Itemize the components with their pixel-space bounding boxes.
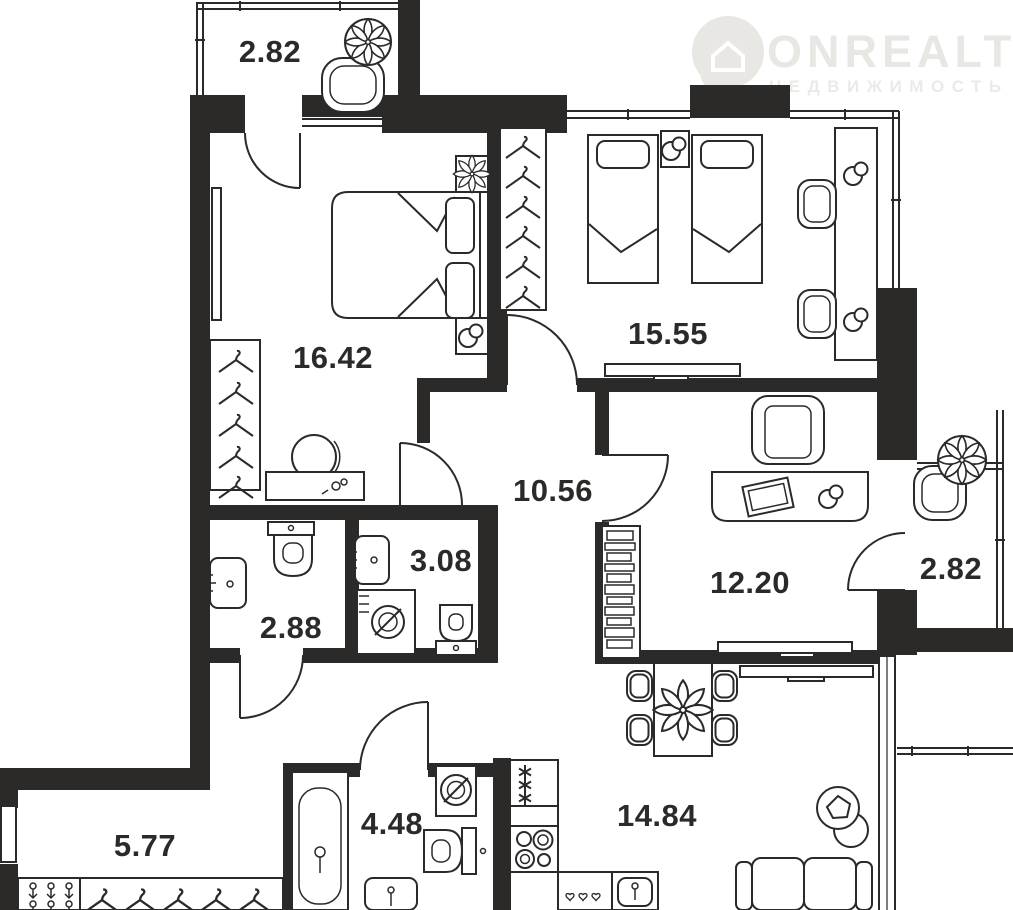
room-label-bathroom-small: 3.08 — [410, 543, 472, 578]
exterior-ledge — [897, 746, 1013, 756]
door-bathroom-2 — [240, 655, 303, 718]
bedroom-2-window — [567, 109, 690, 120]
logo-brand-text: ONREALT — [767, 26, 1013, 77]
logo-subtitle-text: НЕДВИЖИМОСТЬ — [769, 77, 1009, 96]
balcony-door-window — [302, 119, 382, 126]
room-label-balcony-top-left: 2.82 — [239, 34, 301, 69]
door-balcony-top-left — [245, 133, 300, 188]
kitchen-window — [878, 656, 896, 910]
study-furniture — [602, 396, 868, 658]
door-bathroom-main — [360, 702, 428, 770]
room-label-kitchen-living: 14.84 — [617, 798, 697, 833]
room-label-bedroom-2: 15.55 — [628, 316, 708, 351]
door-bedroom-2 — [507, 315, 577, 385]
bathroom-2-fixtures — [202, 522, 314, 608]
door-bathroom-small — [400, 443, 462, 505]
balcony-right-furniture — [914, 436, 986, 520]
door-balcony-right — [848, 533, 905, 590]
room-label-bathroom-main: 4.48 — [361, 806, 423, 841]
room-label-bathroom-2: 2.88 — [260, 610, 322, 645]
balcony-top-left-furniture — [322, 19, 391, 112]
entry-hall-furniture — [18, 878, 283, 910]
room-label-balcony-right: 2.82 — [920, 551, 982, 586]
floor-plan: ONREALT НЕДВИЖИМОСТЬ — [0, 0, 1013, 910]
room-label-bedroom-1: 16.42 — [293, 340, 373, 375]
floor-plan-page: ONREALT НЕДВИЖИМОСТЬ — [0, 0, 1013, 910]
door-study — [602, 455, 668, 521]
room-label-study: 12.20 — [710, 565, 790, 600]
entry-hall-window — [1, 806, 16, 862]
room-label-hallway: 10.56 — [513, 473, 593, 508]
kitchen-living-furniture — [510, 663, 873, 910]
room-label-entry-hall: 5.77 — [114, 828, 176, 863]
bedroom-1-furniture — [210, 155, 491, 500]
